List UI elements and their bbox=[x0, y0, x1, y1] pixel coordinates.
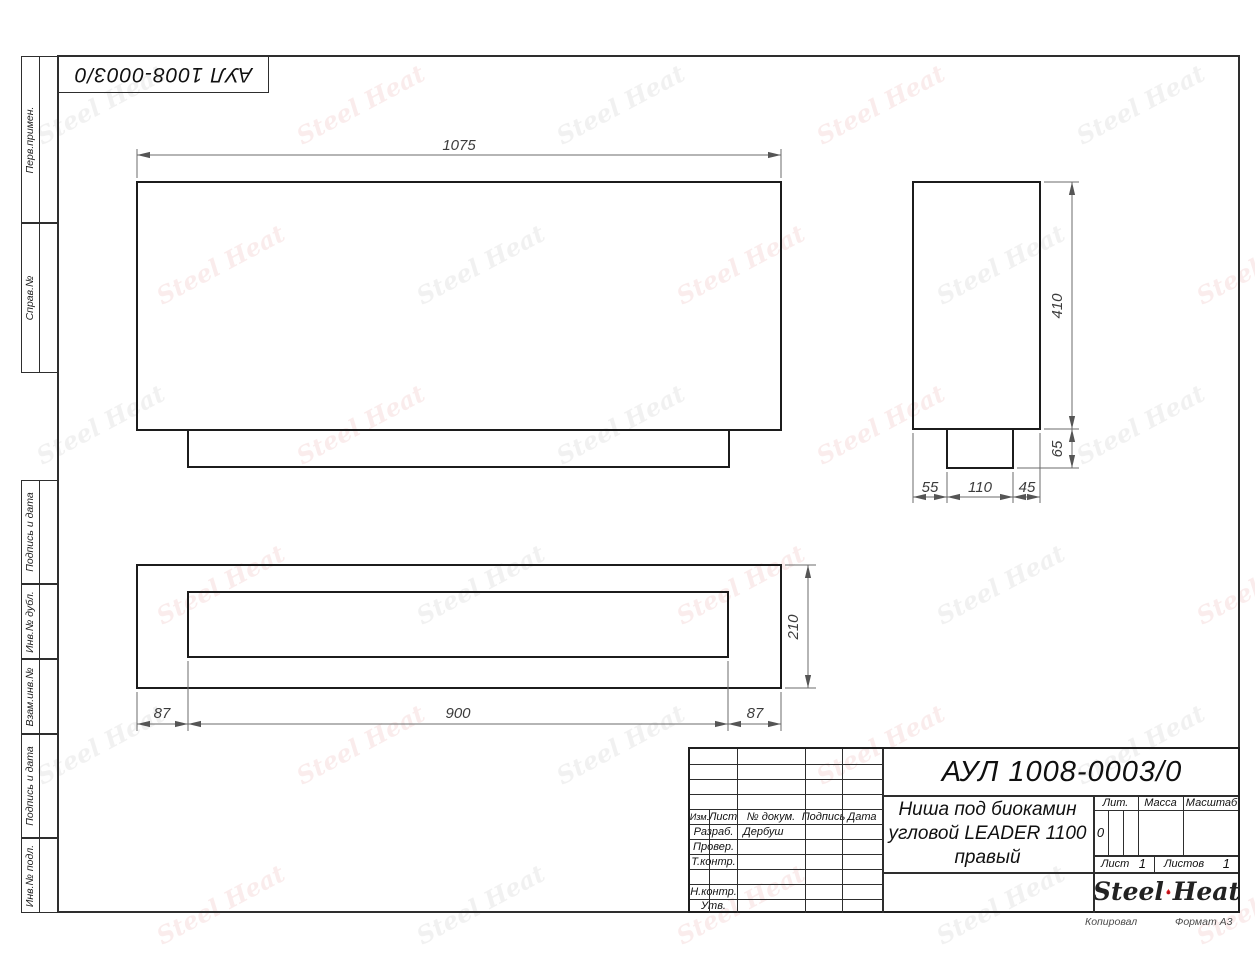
title-block: Изм. Лист № докум. Подпись Дата Разраб. … bbox=[688, 747, 1240, 913]
titleblock-hline bbox=[690, 884, 882, 885]
titleblock-vline bbox=[1183, 795, 1184, 855]
sidebar-label: Взам.инв.№ bbox=[24, 667, 36, 726]
titleblock-hline bbox=[690, 764, 882, 765]
tb-role-razrab: Разраб. bbox=[690, 824, 737, 839]
titleblock-vline bbox=[1154, 855, 1155, 872]
titleblock-vline bbox=[1123, 810, 1124, 855]
tb-header-doc: № докум. bbox=[737, 809, 805, 824]
sidebar-label: Инв.№ подл. bbox=[24, 844, 36, 906]
tb-listov-value: 1 bbox=[1223, 856, 1230, 871]
sidebar-box-sprav-no: Справ.№ bbox=[21, 223, 58, 373]
sidebar-box-podpis-data-1: Подпись и дата bbox=[21, 480, 58, 584]
sidebar-box-vzam-inv: Взам.инв.№ bbox=[21, 659, 58, 734]
tb-lit-label: Лит. bbox=[1093, 795, 1138, 810]
tb-product-name-line3: правый bbox=[954, 846, 1020, 870]
titleblock-hline bbox=[690, 869, 882, 870]
tb-razrab-name: Дербуш bbox=[737, 824, 805, 839]
titleblock-vline bbox=[842, 749, 843, 913]
flame-icon bbox=[1166, 877, 1171, 907]
tb-product-name: Ниша под биокамин угловой LEADER 1100 пр… bbox=[882, 795, 1093, 872]
tb-role-nkontr: Н.контр. bbox=[690, 884, 737, 899]
tb-list-cell: Лист 1 bbox=[1093, 855, 1154, 872]
tb-list-label: Лист bbox=[1101, 858, 1129, 870]
sidebar-label: Перв.примен. bbox=[24, 106, 36, 173]
titleblock-hline bbox=[690, 779, 882, 780]
sidebar-label: Инв.№ дубл. bbox=[24, 591, 36, 653]
titleblock-vline bbox=[737, 749, 738, 913]
tb-massa-label: Масса bbox=[1138, 795, 1183, 810]
tb-product-name-line1: Ниша под биокамин bbox=[898, 798, 1076, 822]
tb-header-izm: Изм. bbox=[690, 809, 709, 824]
sidebar-label: Подпись и дата bbox=[24, 492, 36, 571]
tb-role-utv: Утв. bbox=[690, 899, 737, 913]
titleblock-vline bbox=[1108, 810, 1109, 855]
tb-masshtab-label: Масштаб bbox=[1183, 795, 1240, 810]
tb-header-data: Дата bbox=[842, 809, 882, 824]
tb-role-prover: Провер. bbox=[690, 839, 737, 854]
titleblock-hline bbox=[1093, 855, 1238, 857]
titleblock-hline bbox=[690, 824, 882, 825]
top-designation-text: АУЛ 1008-0003/0 bbox=[74, 62, 252, 86]
tb-role-tkontr: Т.контр. bbox=[690, 854, 737, 869]
sidebar-label: Подпись и дата bbox=[24, 746, 36, 825]
titleblock-hline bbox=[690, 854, 882, 855]
tb-header-podpis: Подпись bbox=[805, 809, 842, 824]
titleblock-vline bbox=[1138, 795, 1139, 855]
tb-product-name-line2: угловой LEADER 1100 bbox=[888, 822, 1086, 846]
titleblock-vline bbox=[805, 749, 806, 913]
sidebar-box-perv-primen: Перв.примен. bbox=[21, 56, 58, 223]
sidebar-box-inv-podl: Инв.№ подл. bbox=[21, 838, 58, 913]
copied-label: Копировал bbox=[1085, 916, 1137, 928]
top-designation-box: АУЛ 1008-0003/0 bbox=[57, 55, 269, 93]
sidebar-box-inv-dubl: Инв.№ дубл. bbox=[21, 584, 58, 659]
logo-steel-text: Steel bbox=[1093, 877, 1164, 906]
sidebar-label: Справ.№ bbox=[24, 276, 36, 321]
steelheat-logo: Steel Heat bbox=[1093, 872, 1240, 911]
titleblock-hline bbox=[1093, 810, 1238, 811]
titleblock-hline bbox=[690, 809, 882, 810]
tb-listov-label: Листов bbox=[1164, 858, 1204, 870]
titleblock-vline bbox=[882, 749, 884, 913]
titleblock-hline bbox=[882, 795, 1238, 797]
titleblock-hline bbox=[882, 872, 1238, 874]
titleblock-hline bbox=[690, 839, 882, 840]
sidebar-box-podpis-data-2: Подпись и дата bbox=[21, 734, 58, 838]
titleblock-hline bbox=[690, 794, 882, 795]
tb-header-list: Лист bbox=[709, 809, 737, 824]
format-label: Формат А3 bbox=[1175, 916, 1232, 928]
logo-heat-text: Heat bbox=[1173, 877, 1240, 906]
tb-list-value: 1 bbox=[1139, 856, 1146, 871]
tb-listov-cell: Листов 1 bbox=[1154, 855, 1240, 872]
tb-lit-value: 0 bbox=[1093, 810, 1108, 855]
titleblock-hline bbox=[690, 899, 882, 900]
drawing-sheet: Steel HeatSteel HeatSteel HeatSteel Heat… bbox=[0, 0, 1255, 970]
titleblock-vline bbox=[1093, 795, 1095, 913]
tb-designation: АУЛ 1008-0003/0 bbox=[882, 749, 1242, 795]
